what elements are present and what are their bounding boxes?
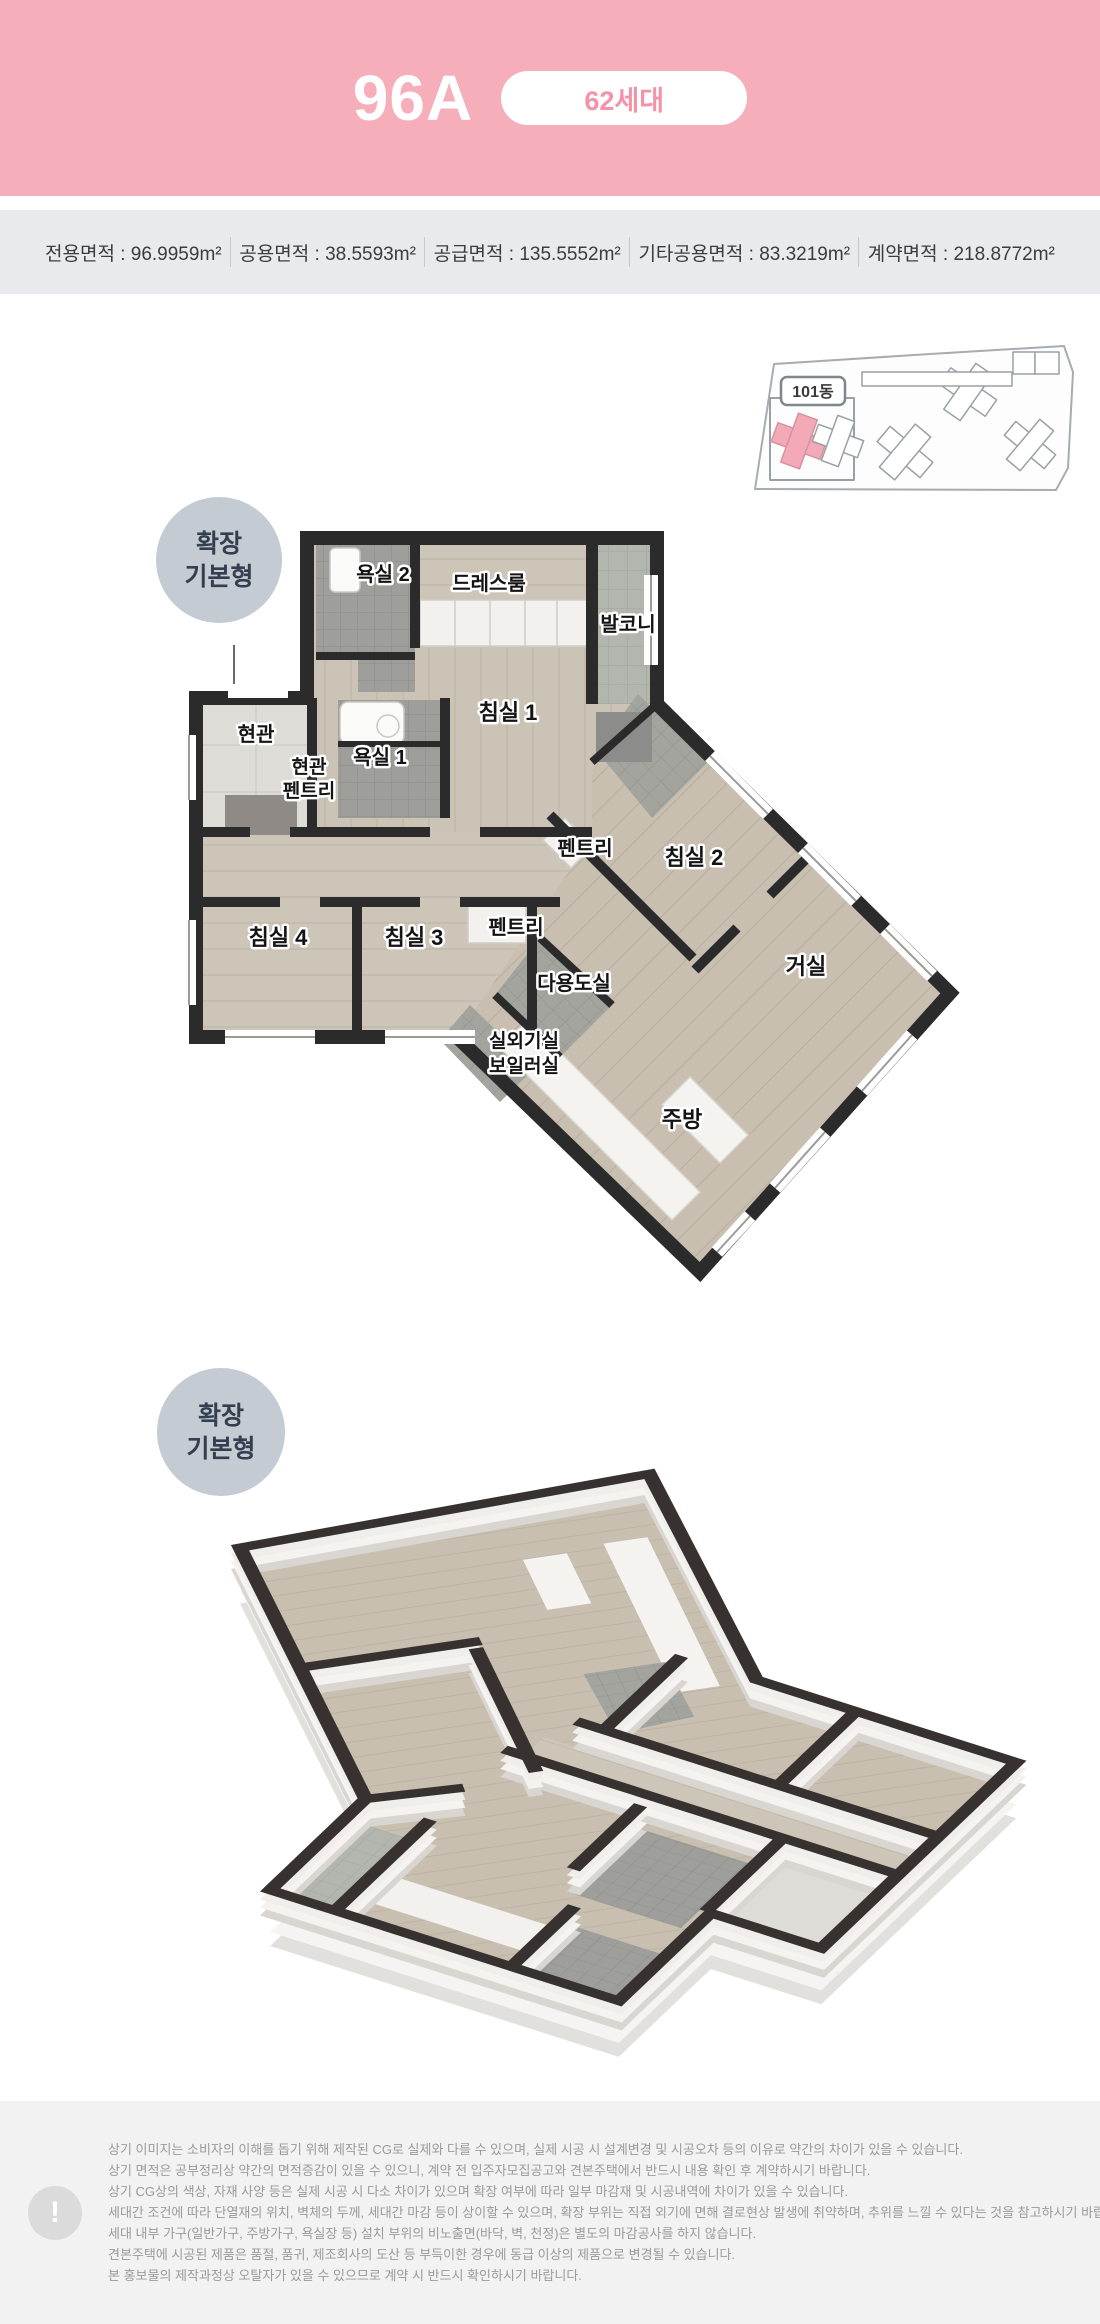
area-item-common: 공용면적 : 38.5593m² [239,239,416,266]
area-item-other-common: 기타공용면적 : 83.3219m² [638,239,850,266]
household-count-label: 62세대 [584,79,664,118]
room-label-bed2: 침실 2 [665,845,724,870]
header: 96A 62세대 [0,0,1100,196]
exclamation-icon: ! [28,2186,82,2240]
iso-view-section: 확장 기본형 [0,1330,1100,2100]
room-label-bath1: 욕실 1 [353,746,406,769]
divider [629,237,630,267]
room-label-bed1: 침실 1 [479,700,538,725]
household-count-badge: 62세대 [501,71,747,125]
area-info-bar: 전용면적 : 96.9959m² 공용면적 : 38.5593m² 공급면적 :… [0,210,1100,294]
disclaimer-section: ! 상기 이미지는 소비자의 이해를 돕기 위해 제작된 CG로 실제와 다를 … [0,2101,1100,2324]
header-inner: 96A 62세대 [353,61,747,135]
divider [230,237,231,267]
room-label-entrance-pantry-2: 펜트리 [283,780,335,802]
disclaimer-lines: 상기 이미지는 소비자의 이해를 돕기 위해 제작된 CG로 실제와 다를 수 … [108,2139,1100,2286]
area-item-supply: 공급면적 : 135.5552m² [434,239,621,266]
room-label-balcony: 발코니 [600,613,655,636]
disclaimer-line: 본 홍보물의 제작과정상 오탈자가 있을 수 있으므로 계약 시 반드시 확인하… [108,2265,1100,2286]
room-label-pantry-a: 펜트리 [557,837,612,860]
plan-type-badge-line2: 기본형 [184,563,253,591]
room-label-entrance-pantry-1: 현관 [292,756,327,778]
room-label-bed4: 침실 4 [249,925,309,950]
room-label-kitchen: 주방 [662,1107,702,1132]
plan-type-badge: 확장 기본형 [156,497,282,694]
building-number-label: 101동 [792,383,834,401]
room-label-living: 거실 [786,954,826,979]
disclaimer-line: 견본주택에 시공된 제품은 품절, 품귀, 제조회사의 도산 등 부득이한 경우… [108,2244,1100,2265]
room-label-entrance: 현관 [238,723,275,746]
building-number-badge: 101동 [781,377,845,405]
floor-plan-section: 101동 확장 기본형 [0,300,1100,1310]
disclaimer-line: 상기 면적은 공부정리상 약간의 면적증감이 있을 수 있으니, 계약 전 입주… [108,2160,1100,2181]
floor-plan-2d: 욕실 2 드레스룸 발코니 현관 현관 펜트리 욕실 1 침실 1 펜트리 침실… [189,538,950,1272]
divider [858,237,859,267]
room-label-outdoor-unit: 실외기실 [489,1030,559,1052]
room-label-boiler: 보일러실 [489,1055,559,1077]
iso-model [0,1395,1100,2092]
room-label-dressroom: 드레스룸 [452,572,526,595]
disclaimer-line: 세대간 조건에 따라 단열재의 위치, 벽체의 두께, 세대간 마감 등이 상이… [108,2202,1100,2223]
iso-type-badge-line1: 확장 [198,1402,244,1430]
disclaimer-line: 상기 CG상의 색상, 자재 사양 등은 실제 시공 시 다소 차이가 있으며 … [108,2181,1100,2202]
iso-type-badge-line2: 기본형 [186,1435,255,1463]
iso-type-badge: 확장 기본형 [157,1368,285,1496]
plan-type-badge-line1: 확장 [196,530,242,558]
area-item-exclusive: 전용면적 : 96.9959m² [45,239,222,266]
area-item-contract: 계약면적 : 218.8772m² [868,239,1055,266]
disclaimer-line: 상기 이미지는 소비자의 이해를 돕기 위해 제작된 CG로 실제와 다를 수 … [108,2139,1100,2160]
room-label-utility: 다용도실 [537,972,611,995]
room-label-pantry-b: 펜트리 [488,916,543,939]
divider [424,237,425,267]
unit-type-title: 96A [353,61,473,135]
page: 96A 62세대 전용면적 : 96.9959m² 공용면적 : 38.5593… [0,0,1100,2324]
site-plan: 101동 [755,346,1073,491]
disclaimer-line: 세대 내부 가구(일반가구, 주방가구, 욕실장 등) 설치 부위의 비노출면(… [108,2223,1100,2244]
room-label-bath2: 욕실 2 [356,563,409,586]
room-label-bed3: 침실 3 [385,925,444,950]
